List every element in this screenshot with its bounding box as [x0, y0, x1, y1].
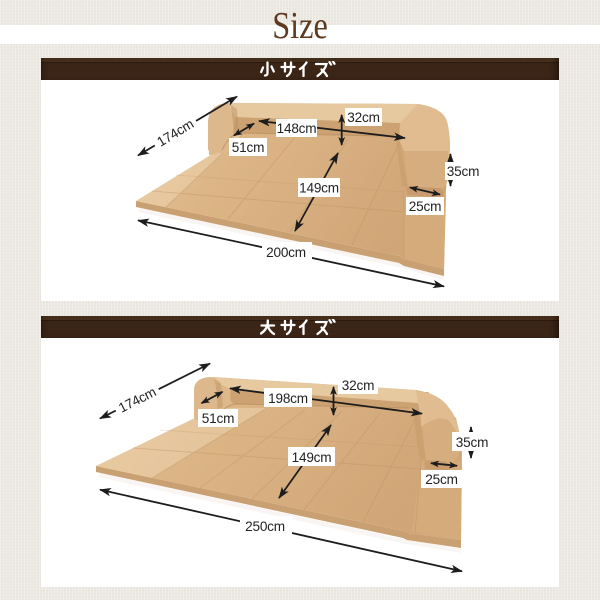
svg-text:35cm: 35cm	[456, 435, 488, 450]
svg-text:149cm: 149cm	[299, 181, 339, 196]
svg-text:200cm: 200cm	[266, 245, 306, 260]
svg-text:51cm: 51cm	[232, 140, 264, 155]
svg-text:25cm: 25cm	[425, 472, 457, 487]
svg-text:250cm: 250cm	[245, 519, 285, 534]
svg-text:32cm: 32cm	[342, 378, 374, 393]
svg-text:25cm: 25cm	[409, 199, 441, 214]
svg-text:35cm: 35cm	[447, 164, 479, 179]
svg-text:51cm: 51cm	[202, 411, 234, 426]
svg-text:148cm: 148cm	[277, 121, 317, 136]
svg-text:149cm: 149cm	[292, 450, 332, 465]
svg-text:32cm: 32cm	[347, 110, 379, 125]
svg-text:198cm: 198cm	[268, 391, 308, 406]
